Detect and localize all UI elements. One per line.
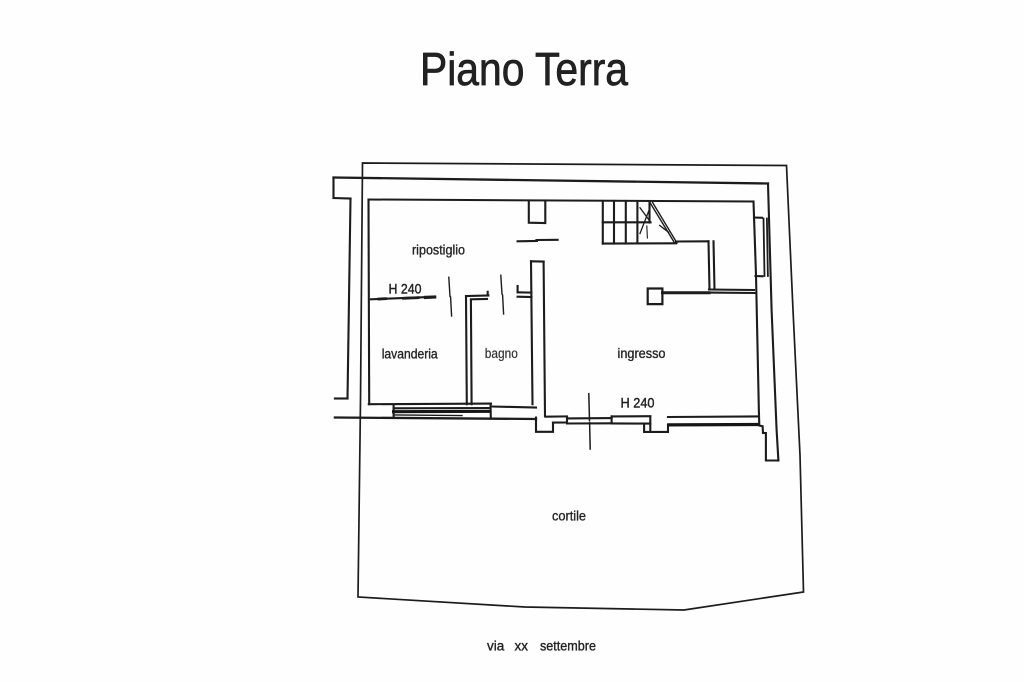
svg-text:Piano Terra: Piano Terra xyxy=(420,43,628,95)
svg-text:settembre: settembre xyxy=(540,639,596,654)
svg-text:cortile: cortile xyxy=(552,509,586,524)
svg-text:xx: xx xyxy=(515,639,529,654)
svg-text:via: via xyxy=(487,639,505,654)
svg-text:ingresso: ingresso xyxy=(618,346,666,361)
svg-text:lavanderia: lavanderia xyxy=(382,347,438,362)
svg-text:ripostiglio: ripostiglio xyxy=(412,243,465,258)
svg-text:bagno: bagno xyxy=(485,346,518,361)
svg-text:H 240: H 240 xyxy=(621,395,655,411)
svg-text:H 240: H 240 xyxy=(389,281,422,297)
